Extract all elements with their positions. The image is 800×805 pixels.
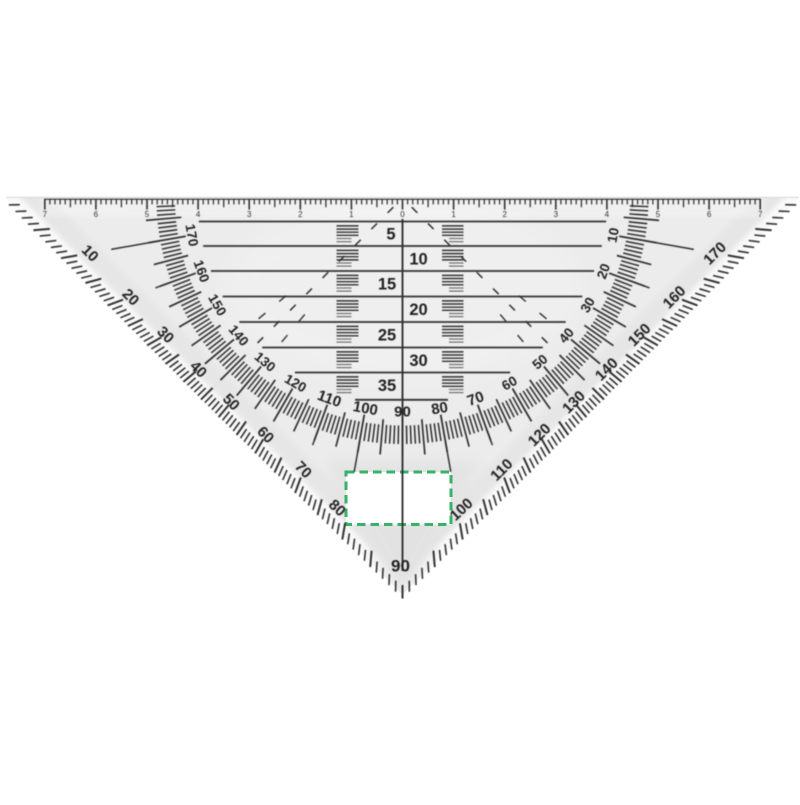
- svg-text:15: 15: [378, 276, 396, 294]
- svg-text:2: 2: [298, 210, 303, 219]
- svg-text:90: 90: [391, 556, 410, 575]
- svg-text:10: 10: [604, 226, 621, 243]
- svg-text:7: 7: [43, 210, 48, 219]
- svg-text:0: 0: [400, 210, 405, 219]
- svg-text:5: 5: [145, 210, 150, 219]
- svg-text:6: 6: [94, 210, 99, 219]
- svg-text:5: 5: [656, 210, 661, 219]
- svg-text:4: 4: [605, 210, 610, 219]
- svg-text:90: 90: [394, 403, 411, 420]
- svg-text:3: 3: [247, 210, 252, 219]
- svg-text:3: 3: [554, 210, 559, 219]
- svg-text:10: 10: [409, 250, 427, 268]
- svg-text:25: 25: [378, 327, 396, 345]
- svg-text:4: 4: [196, 210, 201, 219]
- svg-text:5: 5: [386, 226, 395, 244]
- svg-text:2: 2: [502, 210, 507, 219]
- svg-text:7: 7: [758, 210, 763, 219]
- svg-text:1: 1: [349, 210, 354, 219]
- svg-text:80: 80: [430, 399, 449, 419]
- svg-text:6: 6: [707, 210, 712, 219]
- svg-text:1: 1: [451, 210, 456, 219]
- svg-text:30: 30: [409, 352, 427, 370]
- svg-text:20: 20: [409, 301, 427, 319]
- svg-text:35: 35: [378, 377, 396, 395]
